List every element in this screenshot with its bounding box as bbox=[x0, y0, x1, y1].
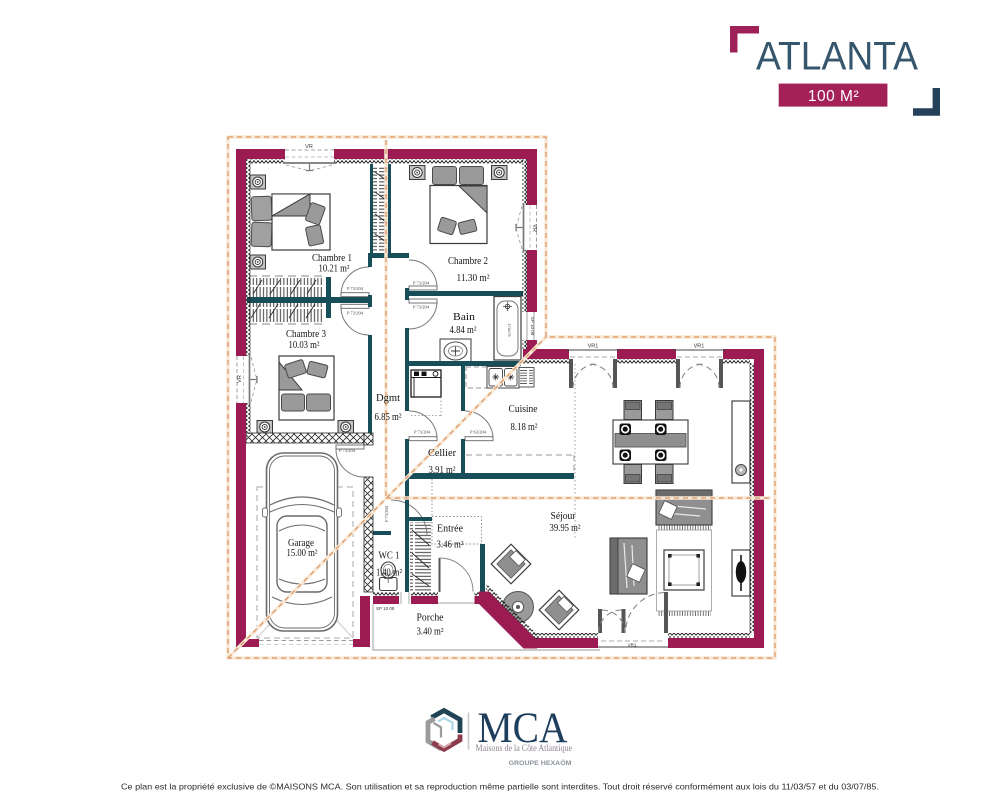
svg-text:SP 10 08: SP 10 08 bbox=[530, 317, 535, 336]
svg-text:P 73/204: P 73/204 bbox=[413, 281, 430, 286]
svg-text:ATLANTA: ATLANTA bbox=[756, 35, 918, 79]
svg-text:Chambre 1: Chambre 1 bbox=[312, 253, 352, 264]
svg-text:6.85 m²: 6.85 m² bbox=[375, 412, 402, 423]
svg-text:39.95 m²: 39.95 m² bbox=[550, 523, 581, 534]
svg-text:VR: VR bbox=[531, 224, 537, 232]
svg-text:1.40 m²: 1.40 m² bbox=[376, 568, 402, 579]
svg-text:P 73/204: P 73/204 bbox=[384, 505, 389, 522]
svg-text:3.91 m²: 3.91 m² bbox=[429, 465, 456, 476]
svg-text:P 73/204: P 73/204 bbox=[413, 305, 430, 310]
svg-text:Porche: Porche bbox=[417, 613, 444, 624]
svg-text:Bain: Bain bbox=[453, 312, 476, 323]
svg-text:15.00 m²: 15.00 m² bbox=[287, 548, 318, 559]
svg-text:Entrée: Entrée bbox=[437, 524, 463, 535]
svg-text:8.18 m²: 8.18 m² bbox=[511, 422, 538, 433]
svg-text:11.30 m²: 11.30 m² bbox=[457, 273, 490, 284]
svg-text:WC 1: WC 1 bbox=[379, 551, 400, 562]
svg-text:SP 10 08: SP 10 08 bbox=[376, 606, 395, 611]
svg-text:Cuisine: Cuisine bbox=[509, 404, 538, 415]
svg-text:Ce plan est la propriété exclu: Ce plan est la propriété exclusive de ©M… bbox=[121, 782, 879, 792]
svg-text:VR1: VR1 bbox=[588, 344, 599, 350]
svg-text:3.40 m²: 3.40 m² bbox=[417, 627, 444, 638]
svg-text:VR: VR bbox=[237, 375, 243, 383]
svg-text:100 M²: 100 M² bbox=[808, 88, 859, 105]
svg-text:P 63/204: P 63/204 bbox=[470, 430, 487, 435]
svg-text:P 73/204: P 73/204 bbox=[339, 448, 356, 453]
svg-text:Chambre 3: Chambre 3 bbox=[286, 329, 326, 340]
svg-text:Cellier: Cellier bbox=[428, 448, 456, 459]
svg-text:P 73/204: P 73/204 bbox=[414, 430, 431, 435]
svg-text:10.03 m²: 10.03 m² bbox=[289, 340, 320, 351]
svg-text:Chambre 2: Chambre 2 bbox=[448, 256, 488, 267]
svg-text:170x75: 170x75 bbox=[507, 323, 512, 337]
svg-text:10.21 m²: 10.21 m² bbox=[319, 264, 350, 275]
svg-text:Dgmt: Dgmt bbox=[376, 393, 400, 404]
svg-text:Séjour: Séjour bbox=[551, 511, 576, 522]
svg-text:4.84 m²: 4.84 m² bbox=[450, 325, 477, 336]
svg-text:3.46 m²: 3.46 m² bbox=[437, 540, 464, 551]
svg-text:VR: VR bbox=[305, 144, 313, 150]
svg-text:P 73/204: P 73/204 bbox=[347, 311, 364, 316]
svg-text:GROUPE HEXAÖM: GROUPE HEXAÖM bbox=[509, 758, 572, 767]
svg-text:VR1: VR1 bbox=[694, 344, 705, 350]
svg-text:VR1: VR1 bbox=[628, 643, 637, 648]
svg-text:P 73/204: P 73/204 bbox=[347, 286, 364, 291]
svg-text:Maisons de la Côte Atlantique: Maisons de la Côte Atlantique bbox=[476, 744, 573, 754]
